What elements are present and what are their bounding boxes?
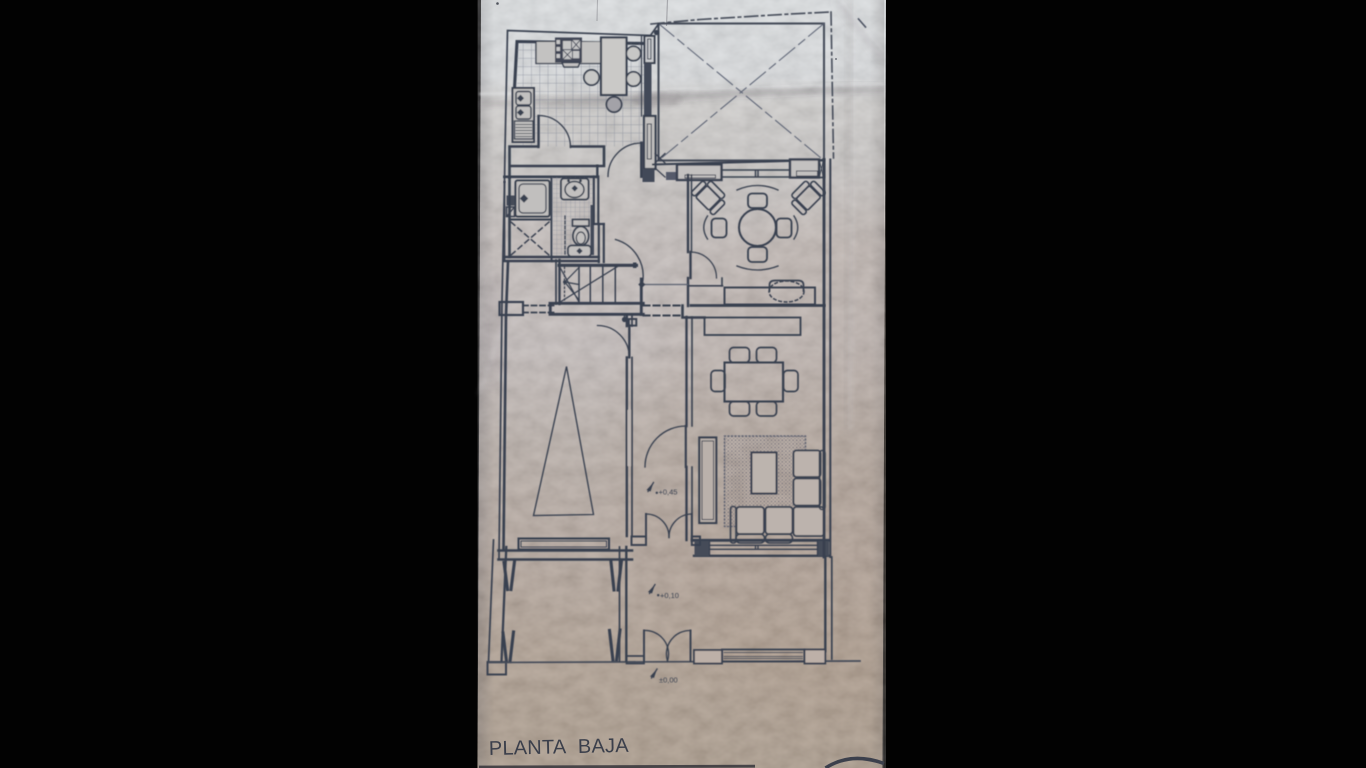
svg-text:±0,00: ±0,00 bbox=[659, 676, 678, 685]
svg-text:PLANTA BAJA: PLANTA BAJA bbox=[489, 735, 630, 760]
svg-text:+0,10: +0,10 bbox=[660, 591, 679, 600]
svg-text:+0,45: +0,45 bbox=[659, 488, 678, 497]
